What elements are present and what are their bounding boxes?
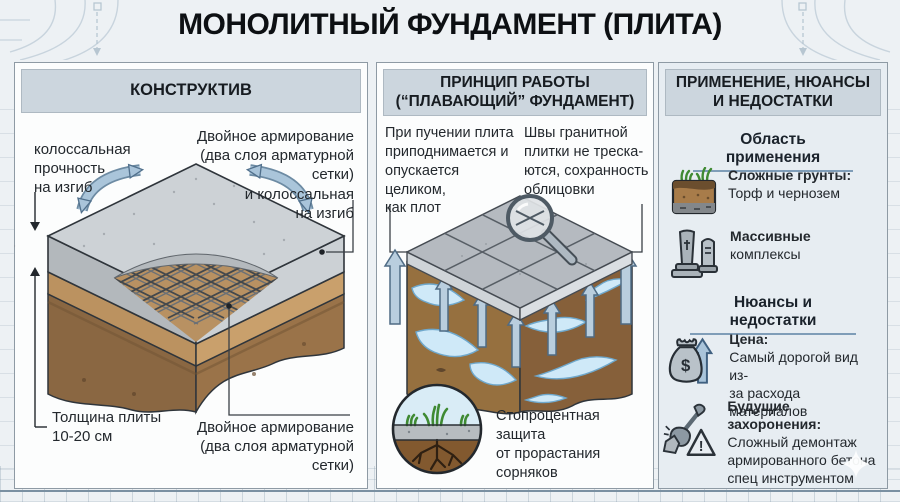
money-bag-icon: $ (666, 331, 719, 389)
item-text: комплексы (730, 246, 811, 264)
dimension-lines (35, 192, 47, 427)
text-heave-principle: При пучении плита приподнимается и опуск… (385, 124, 523, 218)
sparkle-icon (842, 450, 870, 478)
infographic-page: МОНОЛИТНЫЙ ФУНДАМЕНТ (ПЛИТА) КОНСТРУКТИВ… (0, 0, 900, 502)
list-item-complexes: Массивные комплексы (668, 228, 880, 280)
item-text: Торф и чернозем (728, 185, 851, 203)
label-double-reinforcement-bottom: Двойное армирование (два слоя арматурной… (178, 418, 354, 476)
item-title: Будущие захоронения: (727, 398, 880, 434)
dollar-glyph: $ (681, 356, 691, 375)
list-item-soils: Сложные грунты: Торф и чернозем (670, 167, 880, 217)
right-edge-grid (886, 90, 900, 470)
tombstones-icon (668, 228, 720, 280)
section-nuances: Нюансы и недостатки (690, 294, 856, 335)
label-double-reinforcement-top: Двойное армирование (два слоя арматурной… (178, 127, 354, 223)
section-application: Область применения (693, 131, 853, 172)
bottom-rule (0, 490, 900, 492)
header-application: ПРИМЕНЕНИЕ, НЮАНСЫ И НЕДОСТАТКИ (665, 69, 881, 116)
label-flex-strength: колоссальная прочность на изгиб (34, 140, 131, 198)
label-slab-thickness: Толщина плиты 10-20 см (52, 408, 161, 446)
item-title: Массивные (730, 228, 811, 246)
text-weed-protection: Стопроцентная защита от прорастания сорн… (496, 407, 652, 482)
soil-grass-icon (670, 167, 718, 217)
shovel-warning-icon: ! (662, 398, 717, 462)
text-granite-seams: Швы гранитной плитки не треска- ются, со… (524, 124, 654, 199)
weed-protection-icon (389, 381, 485, 477)
item-title: Сложные грунты: (728, 167, 851, 185)
left-edge-grid (0, 90, 14, 470)
item-title: Цена: (729, 331, 880, 349)
page-title: МОНОЛИТНЫЙ ФУНДАМЕНТ (ПЛИТА) (0, 8, 900, 42)
exclamation-glyph: ! (699, 439, 704, 455)
